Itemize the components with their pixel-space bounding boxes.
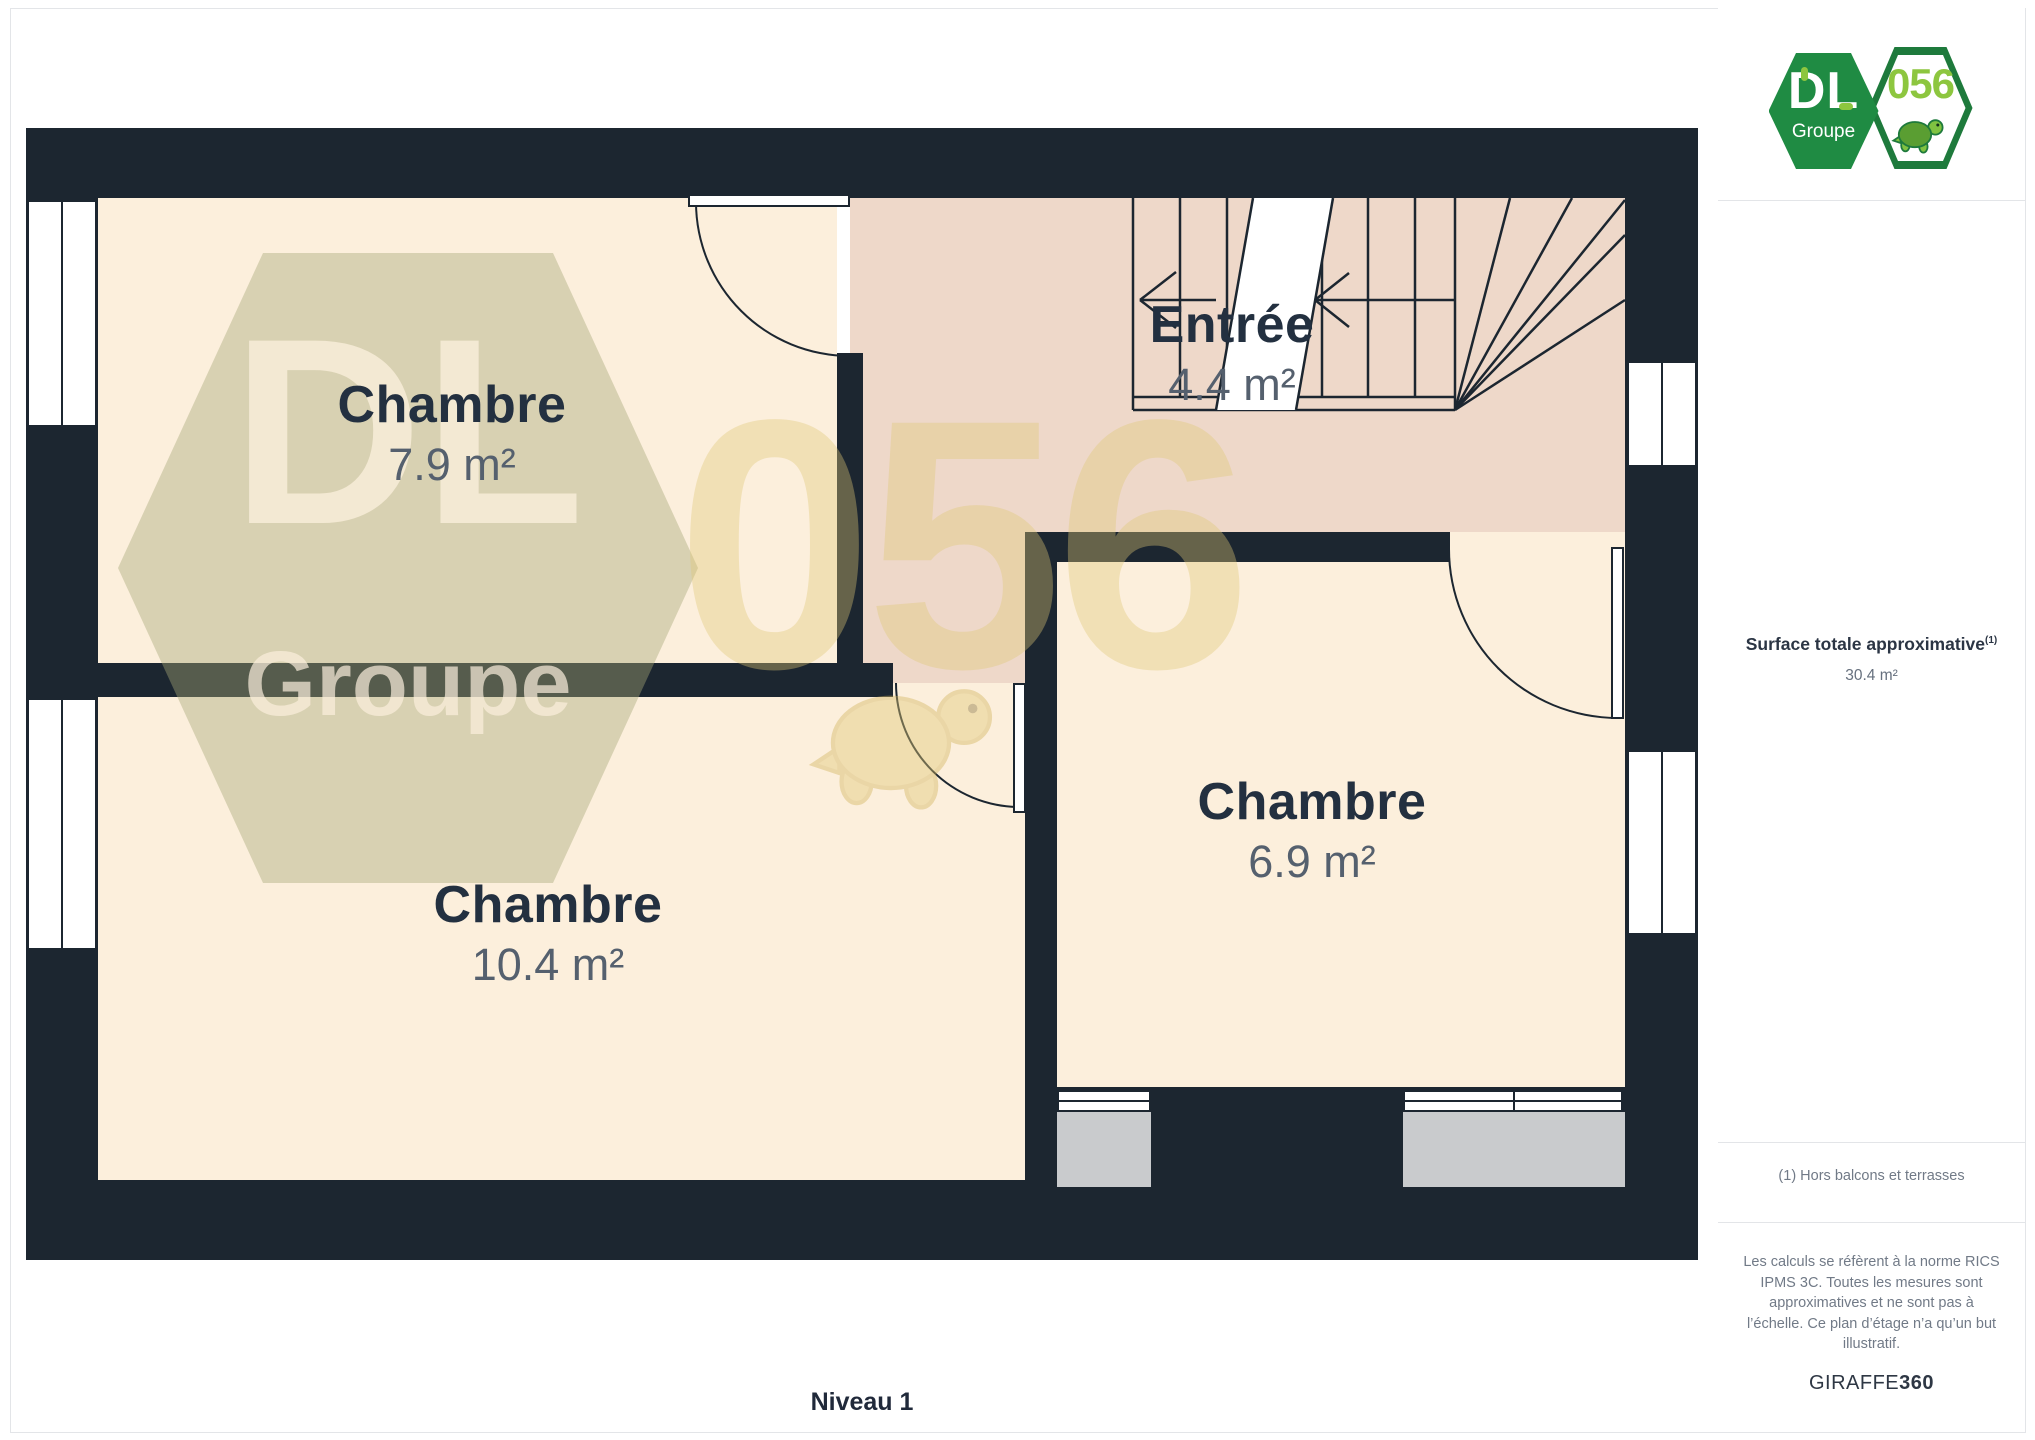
wall-partition-entree — [837, 353, 863, 683]
room-label-entree: Entrée 4.4 m² — [1150, 295, 1315, 411]
door-leaf-chambre-69 — [1611, 547, 1624, 719]
room-name: Chambre — [338, 375, 567, 435]
window-right-bottom — [1627, 750, 1697, 935]
window-bottom-small — [1057, 1090, 1151, 1112]
giraffe360-bold: 360 — [1899, 1372, 1934, 1394]
wall-chambre69-left — [1025, 532, 1057, 1187]
floorplan-page: DL Groupe 056 Chambre 7.9 m² Entrée 4.4 … — [0, 0, 2035, 1440]
wall-outer-bottom-right — [1055, 1187, 1698, 1260]
logo-brand-text: DL — [1769, 65, 1879, 117]
level-label: Niveau 1 — [811, 1388, 914, 1417]
wall-room-divider — [26, 663, 893, 697]
door-leaf-chambre-79 — [688, 194, 850, 207]
room-area: 6.9 m² — [1198, 836, 1427, 888]
room-name: Chambre — [434, 875, 663, 935]
wall-outer-top — [26, 128, 1698, 198]
wall-outer-bottom-left — [26, 1180, 1055, 1260]
wall-chambre69-top — [1025, 532, 1450, 562]
footnote: (1) Hors balcons et terrasses — [1718, 1168, 2025, 1184]
logo-badge-text: 056 — [1876, 63, 1966, 105]
logo-sub-text: Groupe — [1769, 121, 1879, 143]
room-name: Entrée — [1150, 295, 1315, 355]
surface-total-title-text: Surface totale approximative — [1746, 634, 1985, 654]
room-area: 7.9 m² — [338, 439, 567, 491]
window-bottom-large — [1403, 1090, 1623, 1112]
room-name: Chambre — [1198, 772, 1427, 832]
surface-total-block: Surface totale approximative(1) 30.4 m² — [1718, 634, 2025, 685]
window-sill-small — [1057, 1112, 1151, 1187]
logo-turtle-icon — [1891, 105, 1951, 157]
surface-total-sup: (1) — [1985, 635, 1997, 646]
disclaimer-text: Les calculs se réfèrent à la norme RICS … — [1742, 1252, 2001, 1355]
sidebar: DL Groupe 056 Surface totale approximati… — [1718, 8, 2025, 1432]
room-label-chambre-79: Chambre 7.9 m² — [338, 375, 567, 491]
window-right-top — [1627, 361, 1697, 467]
giraffe360-regular: GIRAFFE — [1809, 1372, 1899, 1394]
room-label-chambre-104: Chambre 10.4 m² — [434, 875, 663, 991]
sidebar-divider-3 — [1718, 1222, 2025, 1223]
wall-outer-right — [1625, 128, 1698, 1260]
room-area: 10.4 m² — [434, 939, 663, 991]
sidebar-divider-2 — [1718, 1142, 2025, 1143]
room-label-chambre-69: Chambre 6.9 m² — [1198, 772, 1427, 888]
window-left-top — [27, 200, 97, 427]
agency-logo: DL Groupe 056 — [1769, 47, 1975, 171]
room-area: 4.4 m² — [1150, 359, 1315, 411]
sidebar-divider-1 — [1718, 200, 2025, 201]
surface-total-title: Surface totale approximative(1) — [1718, 634, 2025, 655]
logo-accent-1 — [1801, 67, 1808, 81]
door-leaf-chambre-104 — [1013, 683, 1026, 813]
hall-floor-corridor — [850, 198, 1025, 683]
giraffe360-brand: GIRAFFE360 — [1718, 1372, 2025, 1395]
logo-accent-2 — [1839, 103, 1853, 110]
surface-total-value: 30.4 m² — [1718, 667, 2025, 685]
window-left-bottom — [27, 698, 97, 950]
window-sill-large — [1403, 1112, 1625, 1187]
